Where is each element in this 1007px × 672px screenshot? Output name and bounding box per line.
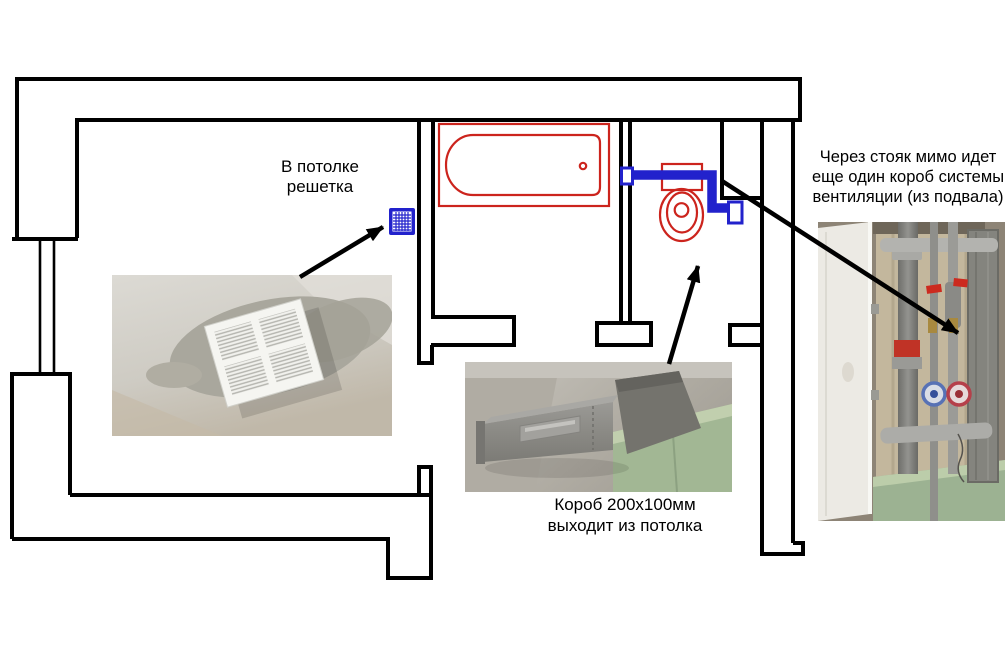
photo-duct-from-ceiling xyxy=(465,362,732,492)
lower-left-wall xyxy=(12,374,70,539)
arrow-photo-to-grille xyxy=(300,227,383,277)
label-riser-note-line2: еще один короб системы xyxy=(806,167,1007,187)
label-ceiling-grille: В потолке решетка xyxy=(240,157,400,197)
toilet-bowl-inner xyxy=(667,193,697,233)
bottom-wall-bottom-edge xyxy=(12,467,431,578)
toilet-door-jamb xyxy=(597,323,651,345)
toilet-tank xyxy=(662,164,702,190)
photo-riser-pipes xyxy=(818,222,1005,521)
right-wall-inner-line xyxy=(762,120,803,554)
vent-duct-flange-left xyxy=(622,168,633,184)
photo-duct-image xyxy=(465,362,732,492)
label-duct-exit-line1: Короб 200х100мм xyxy=(500,494,750,515)
hall-bath-wall-left-line xyxy=(419,120,432,363)
toilet-bowl-hole xyxy=(675,203,689,217)
top-left-wall xyxy=(17,79,800,238)
label-ceiling-grille-line1: В потолке xyxy=(240,157,400,177)
grille-frame xyxy=(389,208,415,235)
vent-duct-flange-right xyxy=(729,202,743,223)
photo-ceiling-grille xyxy=(112,275,392,436)
label-riser-note-line3: вентиляции (из подвала) xyxy=(806,187,1007,207)
bathtub-symbol xyxy=(439,124,609,206)
photo-ceiling-grille-image xyxy=(112,275,392,436)
bathtub-outline xyxy=(439,124,609,206)
label-ceiling-grille-line2: решетка xyxy=(240,177,400,197)
label-duct-exit: Короб 200х100мм выходит из потолка xyxy=(500,494,750,536)
ceiling-grille-symbol xyxy=(389,208,415,235)
toilet-symbol xyxy=(660,164,703,241)
right-wall-door-jamb xyxy=(730,325,762,345)
arrow-photo-to-toilet-duct xyxy=(669,266,698,364)
bathtub-drain xyxy=(580,163,586,169)
label-riser-note-line1: Через стояк мимо идет xyxy=(806,147,1007,167)
grille-grid xyxy=(393,212,411,231)
grille-face xyxy=(393,212,412,232)
vent-duct-run xyxy=(632,175,729,208)
toilet-bowl-outer xyxy=(660,189,703,241)
vent-shaft-wall xyxy=(722,120,763,198)
ventilation-plan-canvas: В потолке решетка Короб 200х100мм выходи… xyxy=(0,0,1007,672)
photo-riser-image xyxy=(818,222,1005,521)
bath-door-jamb xyxy=(431,317,514,345)
bathtub-basin xyxy=(446,135,600,195)
label-duct-exit-line2: выходит из потолка xyxy=(500,515,750,536)
vent-duct-symbol xyxy=(622,168,743,223)
label-riser-note: Через стояк мимо идет еще один короб сис… xyxy=(806,147,1007,207)
